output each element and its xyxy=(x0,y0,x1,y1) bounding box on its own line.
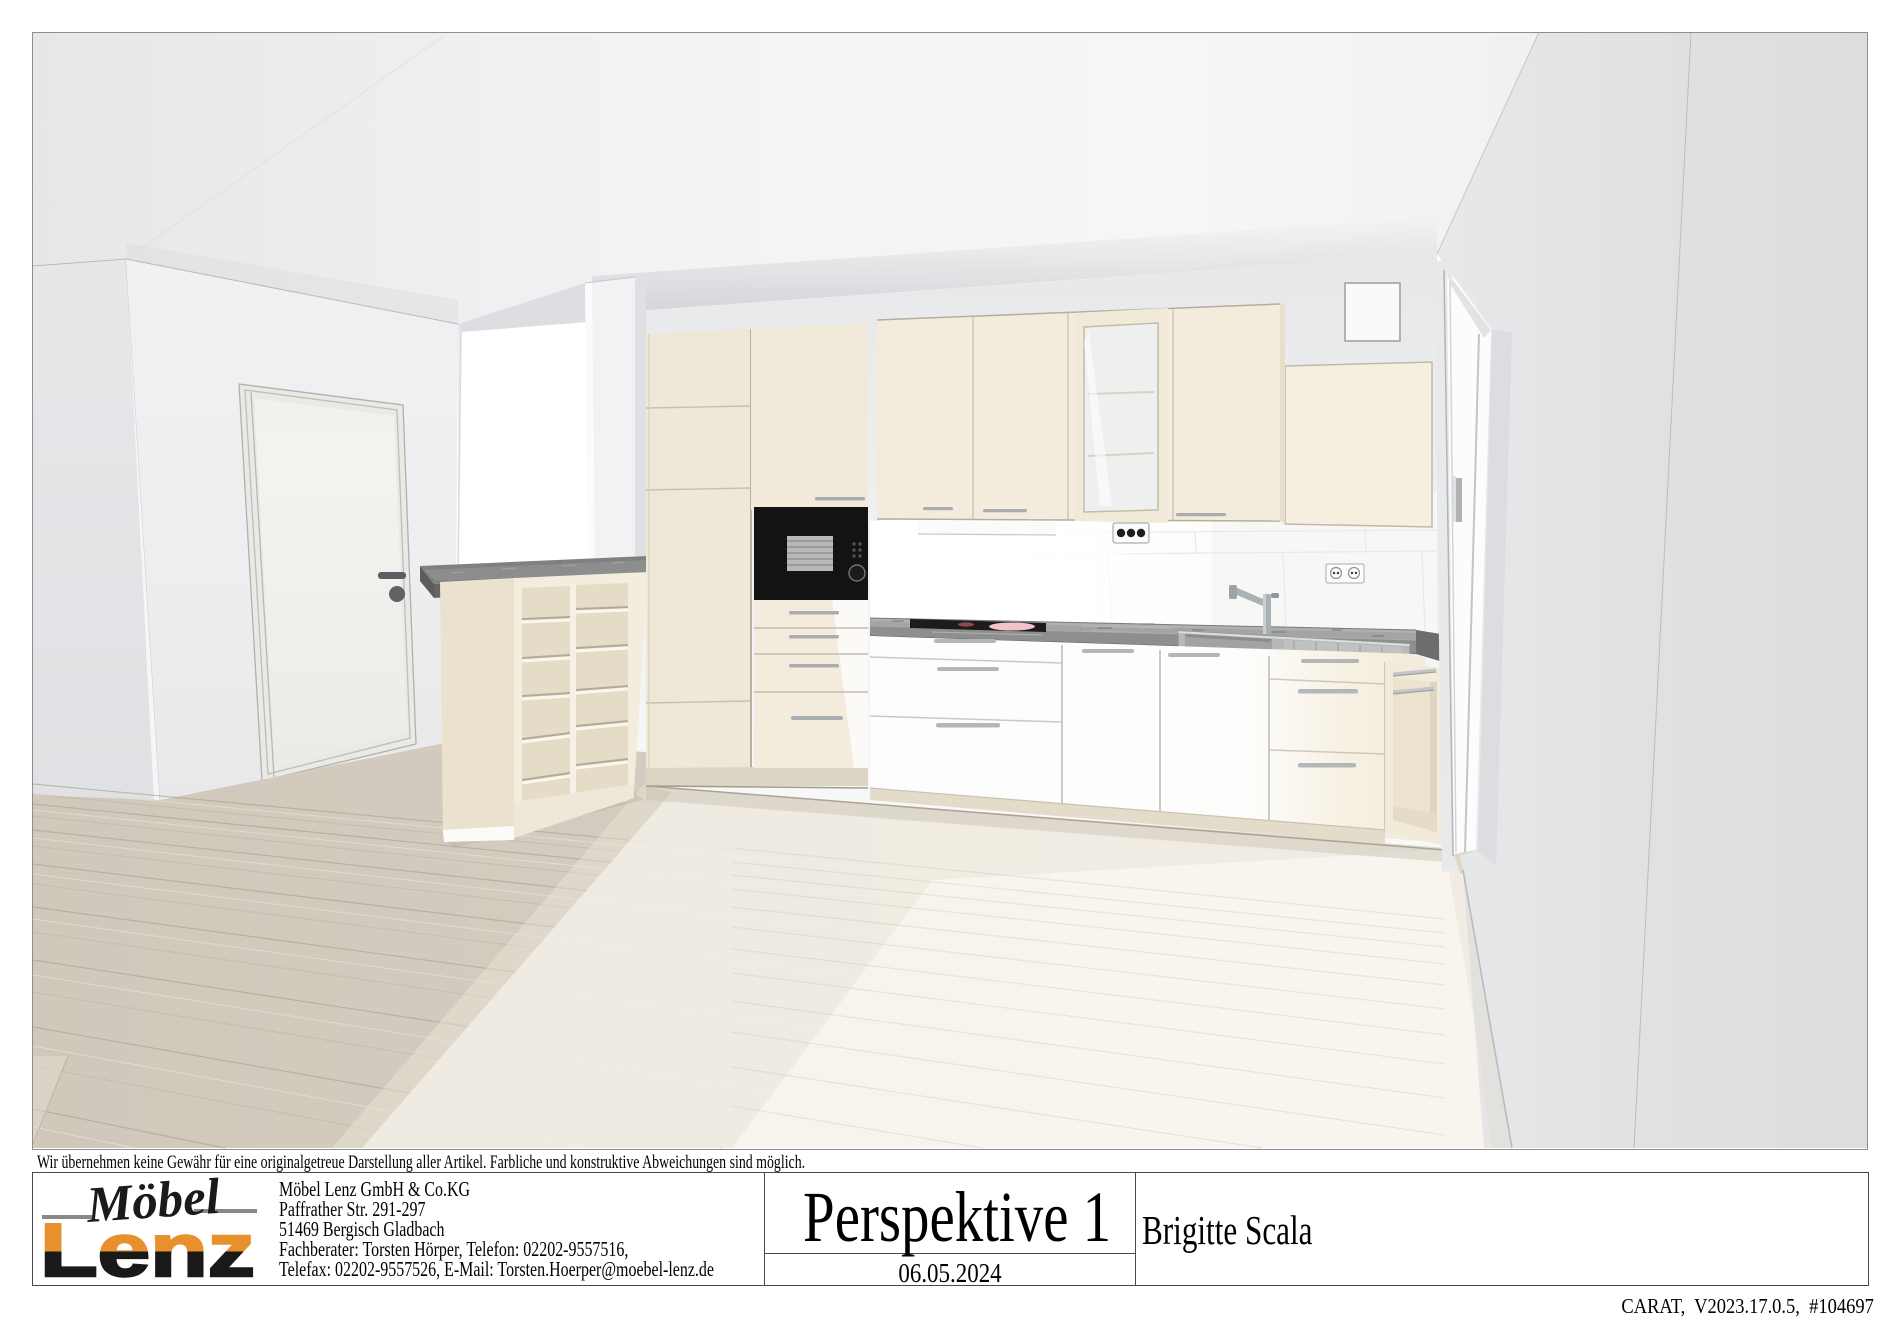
svg-text:Lenz: Lenz xyxy=(40,1208,255,1285)
